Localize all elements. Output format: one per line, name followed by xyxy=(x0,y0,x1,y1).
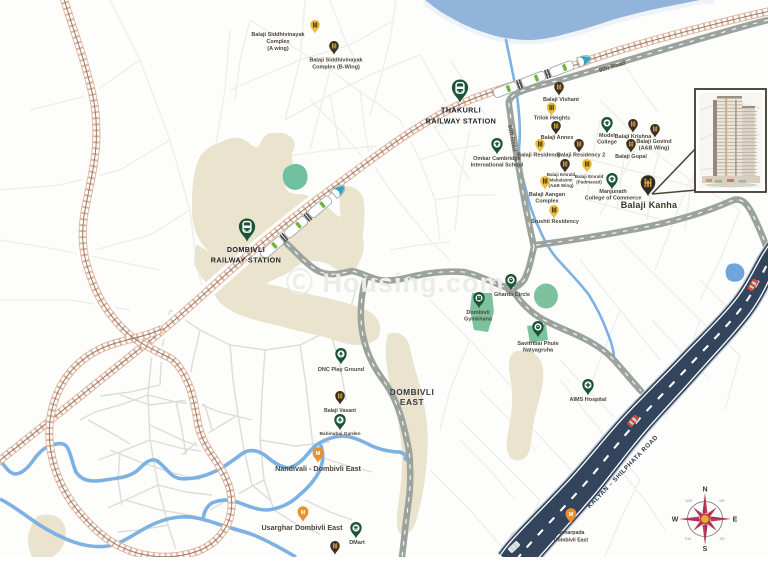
svg-text:Bahinabai Garden: Bahinabai Garden xyxy=(319,431,360,437)
svg-text:(A&B Wing): (A&B Wing) xyxy=(549,183,574,188)
svg-text:Balaji Residency 2: Balaji Residency 2 xyxy=(557,153,605,159)
svg-text:N: N xyxy=(702,487,707,494)
svg-text:RAILWAY STATION: RAILWAY STATION xyxy=(211,256,281,265)
svg-text:Complex: Complex xyxy=(266,39,290,45)
svg-text:Sonarpada: Sonarpada xyxy=(558,530,585,536)
svg-text:RAILWAY STATION: RAILWAY STATION xyxy=(426,117,496,126)
svg-text:Srushti Residency: Srushti Residency xyxy=(531,219,580,225)
svg-text:EAST: EAST xyxy=(400,397,424,407)
svg-text:M: M xyxy=(569,512,574,518)
svg-text:Gharda Circle: Gharda Circle xyxy=(494,292,530,298)
svg-text:Gymkhana: Gymkhana xyxy=(464,317,493,323)
svg-text:Omkar Cambridge: Omkar Cambridge xyxy=(473,156,521,162)
svg-text:(A wing): (A wing) xyxy=(267,46,289,52)
svg-text:Ⓒ Housing.com: Ⓒ Housing.com xyxy=(286,267,505,298)
svg-text:Balaji Residency: Balaji Residency xyxy=(517,153,562,159)
svg-text:DOMBIVLI: DOMBIVLI xyxy=(227,245,265,254)
svg-text:Model: Model xyxy=(599,133,615,139)
svg-text:W: W xyxy=(672,517,679,524)
svg-text:Complex: Complex xyxy=(535,199,559,205)
svg-text:Natyagruha: Natyagruha xyxy=(523,348,554,354)
svg-text:Balaji Vishant: Balaji Vishant xyxy=(543,97,579,103)
svg-text:SW: SW xyxy=(685,536,692,541)
svg-text:College of Commerce: College of Commerce xyxy=(585,196,642,202)
svg-text:DNC Play Ground: DNC Play Ground xyxy=(318,367,364,373)
svg-text:Mahalaxmi: Mahalaxmi xyxy=(549,178,572,183)
svg-text:M: M xyxy=(301,510,306,516)
svg-text:Usarghar Dombivli East: Usarghar Dombivli East xyxy=(261,523,343,532)
svg-text:NE: NE xyxy=(719,498,725,503)
svg-text:Dombivli: Dombivli xyxy=(466,310,490,316)
svg-text:Balaji Aangan: Balaji Aangan xyxy=(529,192,566,198)
svg-text:Balaji Gopal: Balaji Gopal xyxy=(615,154,647,160)
svg-text:Manjunath: Manjunath xyxy=(599,189,627,195)
svg-text:(A&B Wing): (A&B Wing) xyxy=(639,146,670,152)
svg-text:Balaji Emrald: Balaji Emrald xyxy=(575,174,604,179)
svg-text:Balaji Kanha: Balaji Kanha xyxy=(621,200,678,210)
svg-text:Balaji Emrald: Balaji Emrald xyxy=(547,172,576,177)
svg-text:DOMBIVLI: DOMBIVLI xyxy=(390,387,435,397)
svg-text:SE: SE xyxy=(719,536,725,541)
svg-text:International School: International School xyxy=(471,163,524,169)
svg-text:Dombivli East: Dombivli East xyxy=(554,538,589,544)
svg-text:Balaji Siddhivinayak: Balaji Siddhivinayak xyxy=(251,32,305,38)
svg-text:Balaji Govind: Balaji Govind xyxy=(636,139,671,145)
svg-text:E: E xyxy=(733,517,738,524)
svg-text:Balaji Vasant: Balaji Vasant xyxy=(324,408,356,414)
svg-text:DMart: DMart xyxy=(349,540,365,546)
svg-text:Balaji Siddhivinayak: Balaji Siddhivinayak xyxy=(309,58,363,64)
svg-text:THAKURLI: THAKURLI xyxy=(441,106,481,115)
svg-text:NW: NW xyxy=(686,498,693,503)
svg-text:(Padmavati): (Padmavati) xyxy=(576,180,602,185)
svg-text:Nandivali - Dombivli East: Nandivali - Dombivli East xyxy=(275,464,361,473)
svg-text:College: College xyxy=(597,140,617,146)
svg-text:Balaji Annex: Balaji Annex xyxy=(541,135,575,141)
svg-text:Complex (B-Wing): Complex (B-Wing) xyxy=(312,65,360,71)
svg-text:Trilok Heights: Trilok Heights xyxy=(534,116,570,122)
svg-text:S: S xyxy=(703,546,708,553)
svg-text:M: M xyxy=(316,451,321,457)
svg-text:AIMS Hospital: AIMS Hospital xyxy=(570,397,607,403)
svg-text:Savitribai Phule: Savitribai Phule xyxy=(517,341,558,347)
